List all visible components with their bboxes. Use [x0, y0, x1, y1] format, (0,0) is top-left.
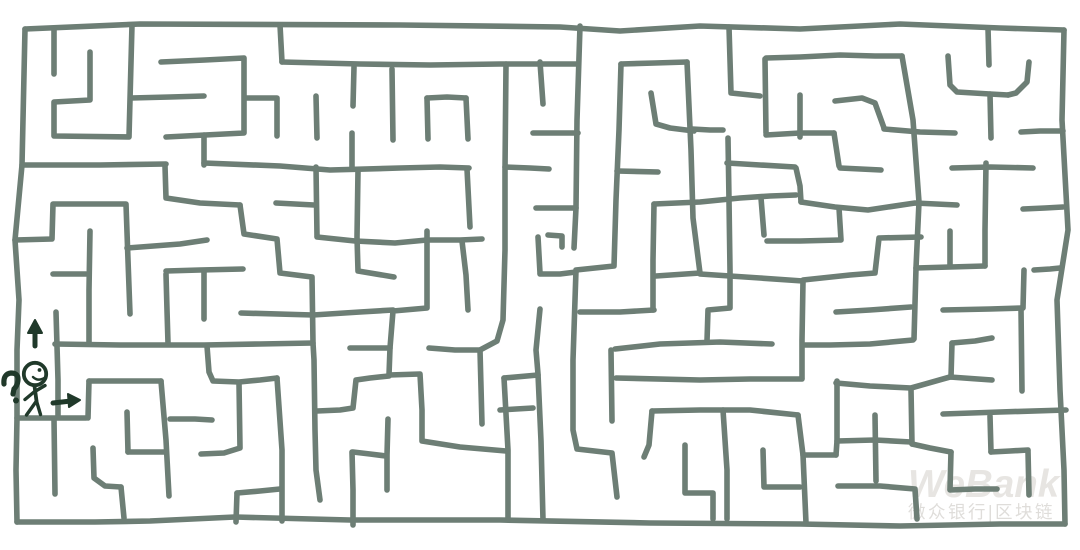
svg-text:WeBank: WeBank — [908, 463, 1062, 506]
svg-text:微众银行|区块链: 微众银行|区块链 — [908, 502, 1055, 522]
